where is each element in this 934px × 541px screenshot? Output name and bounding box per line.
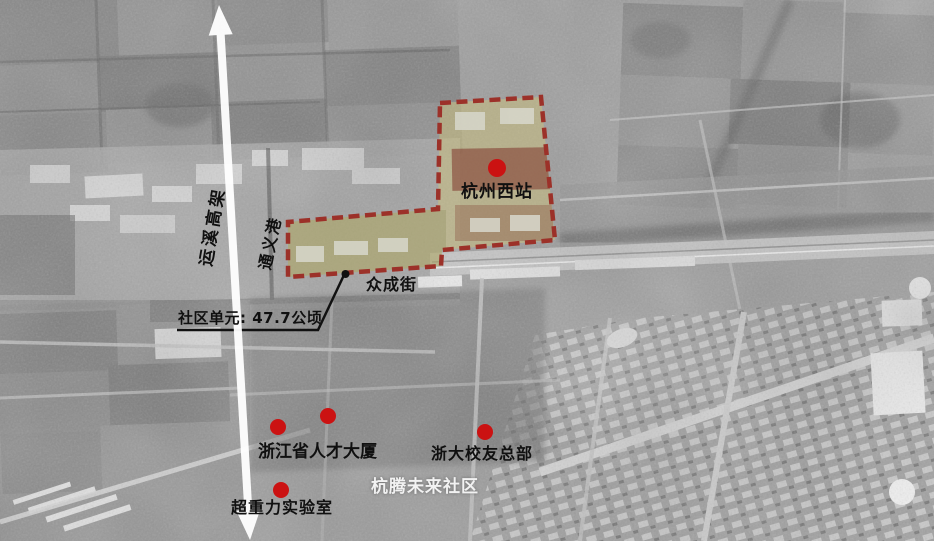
alumni-hq-dot <box>477 424 493 440</box>
station-label: 杭州西站 <box>461 184 533 202</box>
annotated-satellite-map: 杭州西站 众成街 社区单元: 47.7公顷 浙江省人才大厦 浙大校友总部 超重力… <box>0 0 934 541</box>
gravity-lab-label: 超重力实验室 <box>231 500 333 517</box>
talent-tower-dot-2 <box>320 408 336 424</box>
talent-tower-label: 浙江省人才大厦 <box>258 444 377 462</box>
station-dot <box>488 159 506 177</box>
area-note-label: 社区单元: 47.7公顷 <box>178 311 322 327</box>
street-label: 众成街 <box>366 277 417 294</box>
talent-tower-dot <box>270 419 286 435</box>
leader-anchor-dot <box>342 270 350 278</box>
community-label: 杭腾未来社区 <box>371 479 479 497</box>
alumni-hq-label: 浙大校友总部 <box>431 446 533 463</box>
gravity-lab-dot <box>273 482 289 498</box>
